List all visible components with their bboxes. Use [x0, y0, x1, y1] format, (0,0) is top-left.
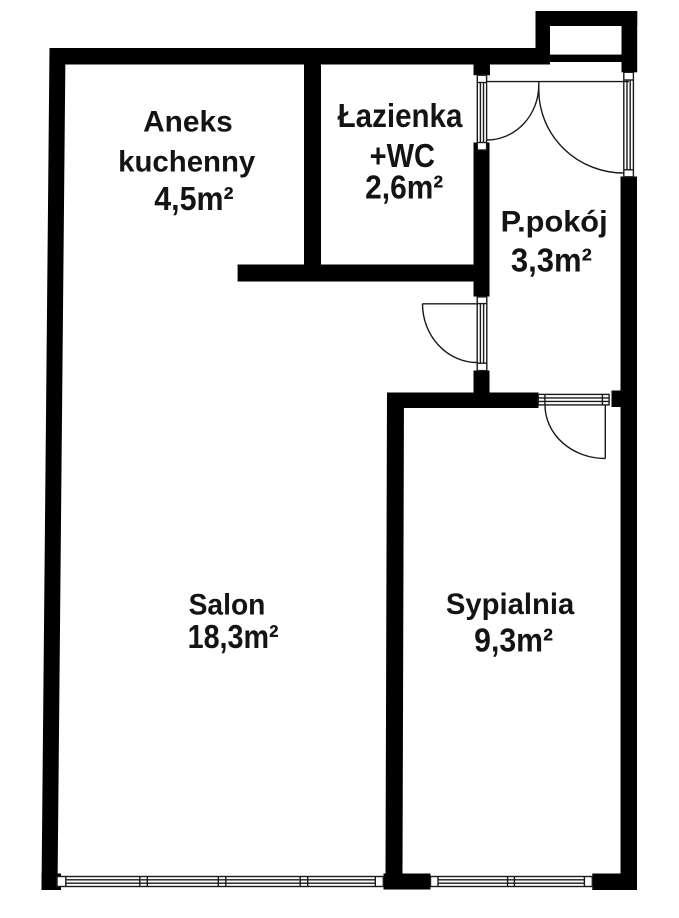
svg-text:4,5m²: 4,5m²	[154, 180, 233, 218]
svg-text:Łazienka: Łazienka	[338, 97, 463, 134]
svg-text:Salon: Salon	[189, 589, 266, 622]
svg-text:P.pokój: P.pokój	[501, 206, 608, 239]
svg-text:2,6m²: 2,6m²	[365, 168, 443, 206]
svg-text:kuchenny: kuchenny	[118, 145, 256, 178]
svg-text:Aneks: Aneks	[143, 106, 233, 139]
svg-text:Sypialnia: Sypialnia	[446, 588, 575, 621]
svg-text:18,3m²: 18,3m²	[188, 618, 279, 655]
svg-text:9,3m²: 9,3m²	[474, 621, 553, 659]
svg-text:3,3m²: 3,3m²	[511, 242, 592, 279]
